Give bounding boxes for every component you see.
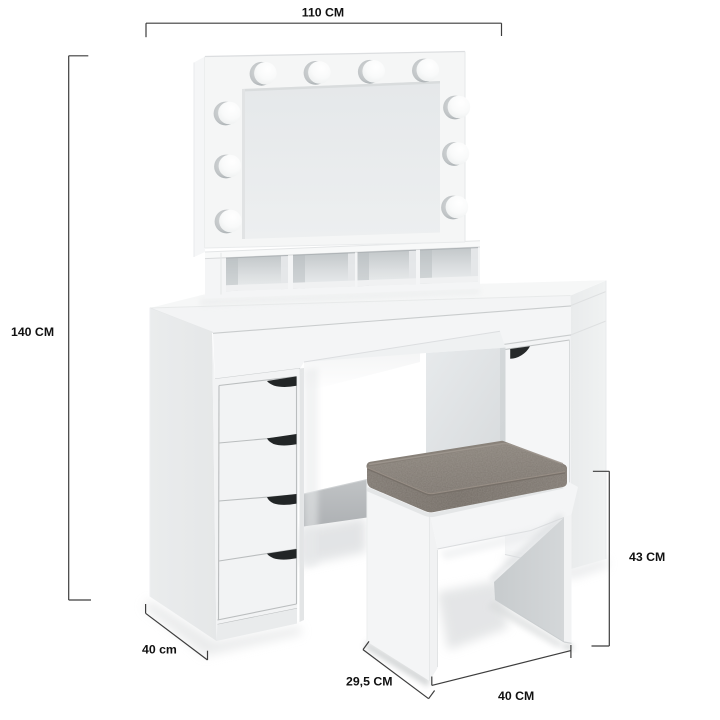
svg-text:40 CM: 40 CM xyxy=(498,689,534,703)
svg-text:43 CM: 43 CM xyxy=(629,550,665,564)
svg-text:29,5 CM: 29,5 CM xyxy=(346,675,392,689)
svg-text:110 CM: 110 CM xyxy=(302,6,344,20)
svg-text:140 CM: 140 CM xyxy=(11,325,54,339)
svg-text:40 cm: 40 cm xyxy=(142,643,177,657)
